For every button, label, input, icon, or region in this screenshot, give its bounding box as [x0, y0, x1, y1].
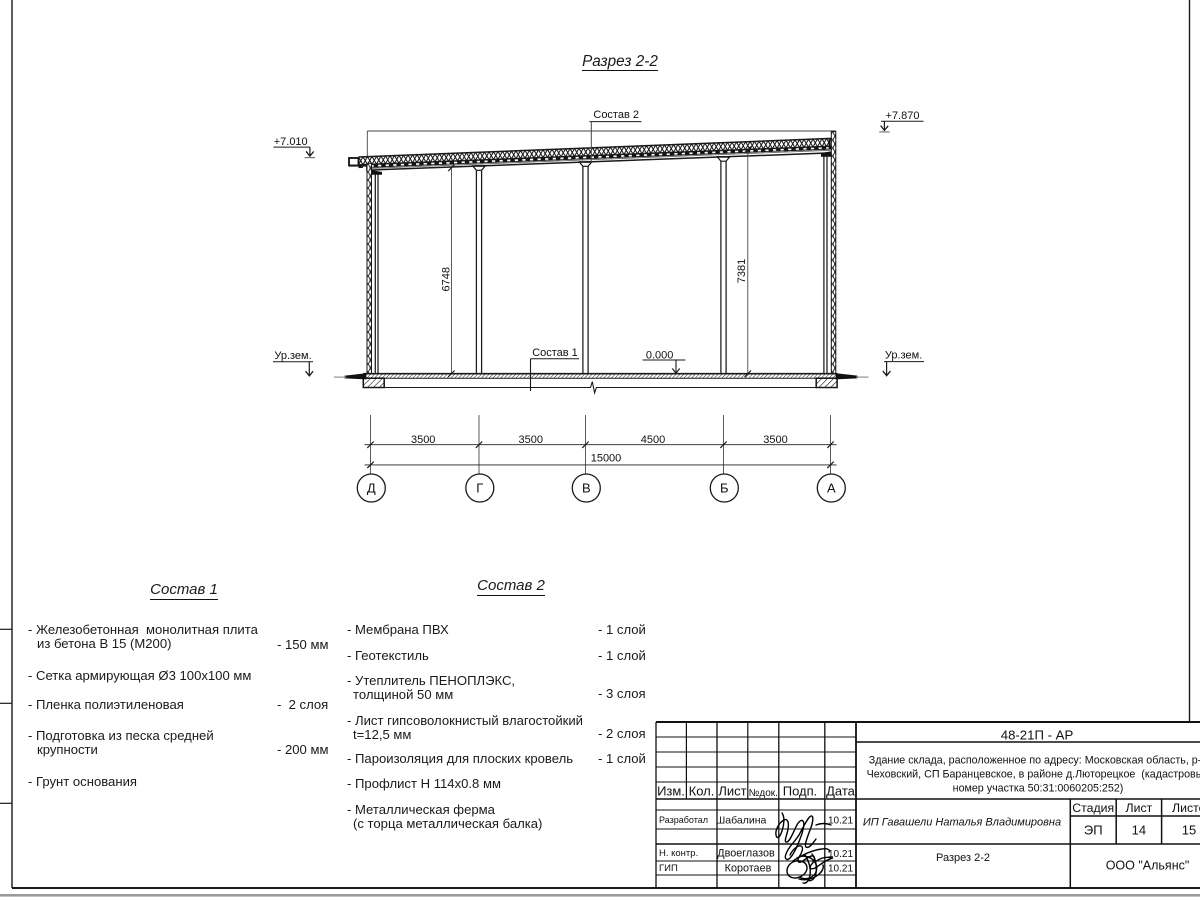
svg-text:ГИП: ГИП — [659, 863, 678, 874]
svg-text:ИП Гавашели Наталья Владимиров: ИП Гавашели Наталья Владимировна — [863, 816, 1061, 828]
svg-text:Листов: Листов — [1172, 801, 1200, 815]
svg-text:Разработал: Разработал — [659, 815, 708, 825]
svg-text:15: 15 — [1182, 823, 1196, 838]
svg-text:ООО "Альянс": ООО "Альянс" — [1106, 859, 1190, 873]
svg-text:ЭП: ЭП — [1084, 823, 1103, 838]
svg-text:Дата: Дата — [826, 784, 856, 799]
svg-text:Чеховский, СП Баранцевское, в: Чеховский, СП Баранцевское, в районе д.Л… — [867, 769, 1200, 781]
svg-text:Изм.: Изм. — [657, 784, 685, 799]
svg-text:Стадия: Стадия — [1072, 801, 1114, 815]
svg-text:Лист: Лист — [718, 784, 746, 799]
svg-text:Двоеглазов: Двоеглазов — [717, 848, 775, 860]
svg-text:Здание склада, расположенное п: Здание склада, расположенное по адресу: … — [869, 754, 1200, 766]
svg-text:номер участка 50:31:0060205:25: номер участка 50:31:0060205:252) — [953, 783, 1124, 795]
svg-text:№док.: №док. — [749, 788, 778, 799]
svg-text:48-21П - АР: 48-21П - АР — [1001, 727, 1074, 742]
svg-text:10.21: 10.21 — [828, 863, 853, 874]
svg-text:Лист: Лист — [1126, 801, 1153, 815]
svg-text:Н. контр.: Н. контр. — [659, 848, 698, 859]
svg-text:Кол.: Кол. — [689, 784, 715, 799]
svg-text:Шабалина: Шабалина — [716, 815, 767, 827]
svg-text:Подп.: Подп. — [783, 784, 818, 799]
svg-text:Коротаев: Коротаев — [725, 862, 772, 874]
svg-text:10.21: 10.21 — [828, 816, 853, 827]
svg-text:14: 14 — [1132, 823, 1146, 838]
svg-text:Разрез 2-2: Разрез 2-2 — [936, 852, 990, 864]
